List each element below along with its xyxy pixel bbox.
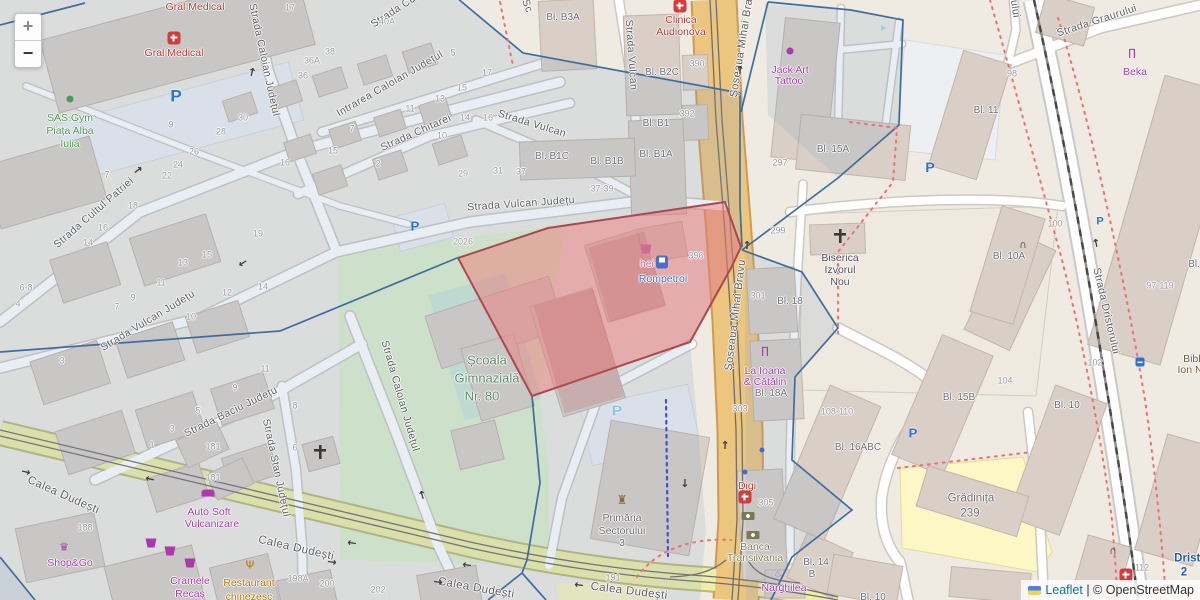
attribution-separator: | © (1083, 583, 1106, 597)
parcel-tint (0, 0, 903, 600)
leaflet-link[interactable]: Leaflet (1045, 583, 1083, 597)
zoom-control: + − (14, 13, 42, 68)
attribution-bar: Leaflet | © OpenStreetMap (1021, 580, 1200, 600)
osm-link[interactable]: OpenStreetMap (1106, 583, 1194, 597)
map-base-layer (0, 0, 1200, 600)
zoom-out-button[interactable]: − (15, 40, 41, 67)
map[interactable]: Strada CultStrada Caloian JudețulIntrare… (0, 0, 1200, 600)
ukraine-flag-icon (1028, 586, 1041, 595)
zoom-in-button[interactable]: + (15, 14, 41, 40)
